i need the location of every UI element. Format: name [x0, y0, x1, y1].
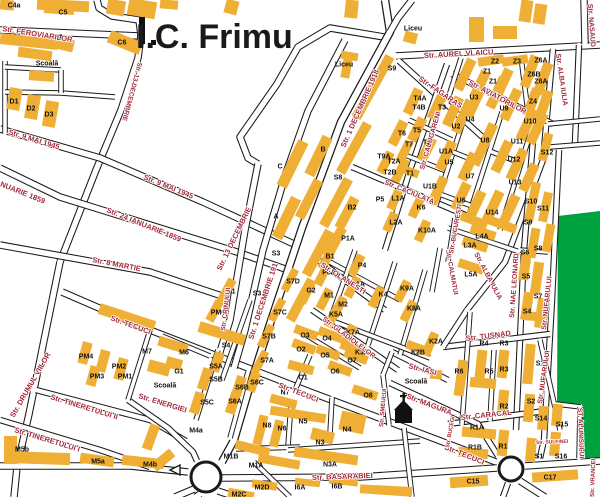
svg-text:T2A: T2A [387, 159, 400, 166]
svg-text:S3: S3 [272, 251, 281, 258]
svg-text:U1A: U1A [439, 149, 453, 156]
svg-text:T2B: T2B [383, 170, 396, 177]
svg-text:Z2: Z2 [491, 59, 499, 66]
svg-text:R3: R3 [500, 367, 509, 374]
svg-text:N6: N6 [278, 426, 287, 433]
svg-text:I.C. Frimu: I.C. Frimu [136, 18, 293, 56]
svg-text:R1: R1 [499, 444, 508, 451]
svg-text:U8: U8 [481, 138, 490, 145]
svg-text:M4b: M4b [143, 462, 157, 469]
svg-text:C17: C17 [544, 475, 557, 482]
svg-text:Z1: Z1 [483, 69, 491, 76]
svg-text:U4: U4 [466, 117, 475, 124]
svg-text:S16: S16 [555, 454, 568, 461]
svg-text:G1: G1 [174, 369, 183, 376]
svg-text:K6: K6 [417, 205, 426, 212]
svg-text:O1: O1 [298, 375, 307, 382]
svg-text:Liceu: Liceu [404, 26, 422, 33]
svg-text:T5: T5 [413, 128, 421, 135]
svg-text:T7: T7 [405, 142, 413, 149]
svg-text:S6B: S6B [235, 385, 249, 392]
svg-text:M2D: M2D [255, 485, 270, 492]
svg-text:R6: R6 [455, 369, 464, 376]
svg-text:U2: U2 [452, 124, 461, 131]
svg-text:L3A: L3A [463, 243, 476, 250]
svg-text:M1: M1 [324, 293, 334, 300]
svg-text:K9A: K9A [400, 286, 414, 293]
svg-text:S5A: S5A [209, 364, 223, 371]
svg-text:Z6B: Z6B [527, 72, 540, 79]
svg-text:S5: S5 [522, 274, 531, 281]
svg-text:M5a: M5a [91, 459, 105, 466]
svg-text:P1A: P1A [341, 236, 355, 243]
svg-text:R1B: R1B [468, 445, 482, 452]
svg-text:P5: P5 [376, 197, 385, 204]
svg-text:Scoală: Scoală [36, 61, 59, 68]
svg-text:PM1: PM1 [118, 374, 133, 381]
svg-text:U13: U13 [509, 180, 522, 187]
svg-text:S8: S8 [534, 246, 543, 253]
svg-text:M1A: M1A [249, 463, 264, 470]
svg-text:C: C [277, 164, 282, 171]
svg-text:Z3: Z3 [513, 59, 521, 66]
svg-text:I6A: I6A [295, 485, 306, 492]
svg-text:M7: M7 [142, 349, 152, 356]
svg-text:C4a: C4a [8, 3, 21, 10]
svg-text:O5: O5 [320, 353, 329, 360]
svg-text:T3: T3 [438, 105, 446, 112]
svg-text:M1B: M1B [224, 454, 239, 461]
svg-text:S5B: S5B [209, 377, 223, 384]
svg-text:L5A: L5A [464, 272, 477, 279]
svg-text:U14: U14 [486, 210, 499, 217]
svg-text:S7: S7 [534, 294, 543, 301]
svg-text:U10: U10 [524, 119, 537, 126]
svg-text:O6: O6 [330, 369, 339, 376]
svg-text:N5: N5 [299, 419, 308, 426]
svg-text:M5b: M5b [15, 447, 29, 454]
svg-text:C15: C15 [467, 479, 480, 486]
svg-text:S4: S4 [523, 309, 532, 316]
svg-text:T1: T1 [406, 171, 414, 178]
svg-text:S2: S2 [527, 399, 536, 406]
svg-text:M2: M2 [338, 302, 348, 309]
svg-text:L2A: L2A [389, 220, 402, 227]
svg-text:T6: T6 [398, 131, 406, 138]
svg-text:R5: R5 [485, 369, 494, 376]
svg-text:S10: S10 [525, 199, 538, 206]
svg-text:S4: S4 [222, 343, 231, 350]
svg-text:N3: N3 [316, 440, 325, 447]
svg-text:M6: M6 [179, 350, 189, 357]
svg-text:D2: D2 [27, 106, 36, 113]
svg-text:Z6A: Z6A [534, 79, 547, 86]
svg-text:O3: O3 [300, 333, 309, 340]
svg-text:PM4: PM4 [79, 354, 94, 361]
svg-text:Scoală: Scoală [405, 379, 428, 386]
svg-text:R3: R3 [500, 341, 509, 348]
svg-text:K2A: K2A [429, 339, 443, 346]
svg-text:S14: S14 [535, 416, 548, 423]
svg-text:R4: R4 [480, 341, 489, 348]
svg-text:M2C: M2C [232, 492, 247, 498]
svg-text:U7: U7 [466, 174, 475, 181]
svg-text:M4a: M4a [189, 428, 203, 435]
svg-text:O4: O4 [322, 336, 331, 343]
svg-text:PM2: PM2 [112, 364, 127, 371]
svg-text:O8: O8 [363, 393, 372, 400]
svg-text:A: A [273, 214, 278, 221]
svg-text:U12: U12 [508, 157, 521, 164]
svg-text:K4: K4 [379, 292, 388, 299]
svg-text:B2: B2 [348, 205, 357, 212]
svg-text:N8: N8 [263, 423, 272, 430]
svg-text:K2B: K2B [411, 350, 425, 357]
svg-text:N4: N4 [343, 427, 352, 434]
svg-text:Z1: Z1 [489, 79, 497, 86]
svg-text:D1: D1 [10, 99, 19, 106]
svg-text:G2: G2 [306, 288, 315, 295]
svg-text:S6A: S6A [228, 399, 242, 406]
svg-text:K8A: K8A [407, 306, 421, 313]
svg-text:S5C: S5C [200, 400, 214, 407]
svg-text:U11: U11 [511, 139, 524, 146]
svg-text:S7D: S7D [286, 279, 300, 286]
svg-text:S12: S12 [541, 150, 554, 157]
svg-text:U1B: U1B [423, 184, 437, 191]
svg-text:B: B [320, 147, 325, 154]
svg-text:Z6A: Z6A [534, 58, 547, 65]
svg-text:S15: S15 [556, 422, 569, 429]
svg-text:Scoală: Scoală [154, 383, 177, 390]
svg-text:S7A: S7A [260, 358, 274, 365]
svg-text:O2: O2 [296, 347, 305, 354]
svg-text:S9: S9 [524, 220, 533, 227]
svg-text:S1: S1 [535, 454, 544, 461]
svg-text:K5A: K5A [329, 312, 343, 319]
svg-text:C6: C6 [118, 40, 127, 47]
svg-text:S11: S11 [537, 206, 549, 213]
svg-text:S8: S8 [334, 175, 343, 182]
svg-text:S7C: S7C [273, 310, 287, 317]
svg-text:I6B: I6B [332, 484, 343, 491]
svg-text:B1: B1 [326, 254, 335, 261]
svg-text:T4A: T4A [413, 96, 426, 103]
svg-text:N3A: N3A [323, 462, 337, 469]
svg-text:PM3: PM3 [90, 374, 105, 381]
svg-text:O7: O7 [347, 358, 356, 365]
svg-text:C5: C5 [59, 10, 68, 17]
svg-text:Liceu: Liceu [335, 62, 353, 69]
svg-text:Z4: Z4 [529, 99, 537, 106]
svg-text:S7B: S7B [262, 334, 276, 341]
svg-text:R1A: R1A [470, 425, 484, 432]
svg-text:S6: S6 [521, 250, 530, 257]
svg-text:S9: S9 [388, 66, 397, 73]
svg-text:P4: P4 [358, 263, 367, 270]
svg-text:S6C: S6C [250, 380, 264, 387]
svg-text:U5: U5 [445, 160, 454, 167]
svg-text:L1A: L1A [391, 196, 404, 203]
svg-text:L4A: L4A [475, 234, 488, 241]
svg-text:K10A: K10A [418, 228, 436, 235]
svg-text:U6: U6 [457, 198, 466, 205]
svg-text:D3: D3 [45, 112, 54, 119]
svg-text:T4B: T4B [412, 105, 425, 112]
svg-text:Str. SULFINEI: Str. SULFINEI [536, 439, 569, 446]
svg-text:U3: U3 [470, 95, 479, 102]
